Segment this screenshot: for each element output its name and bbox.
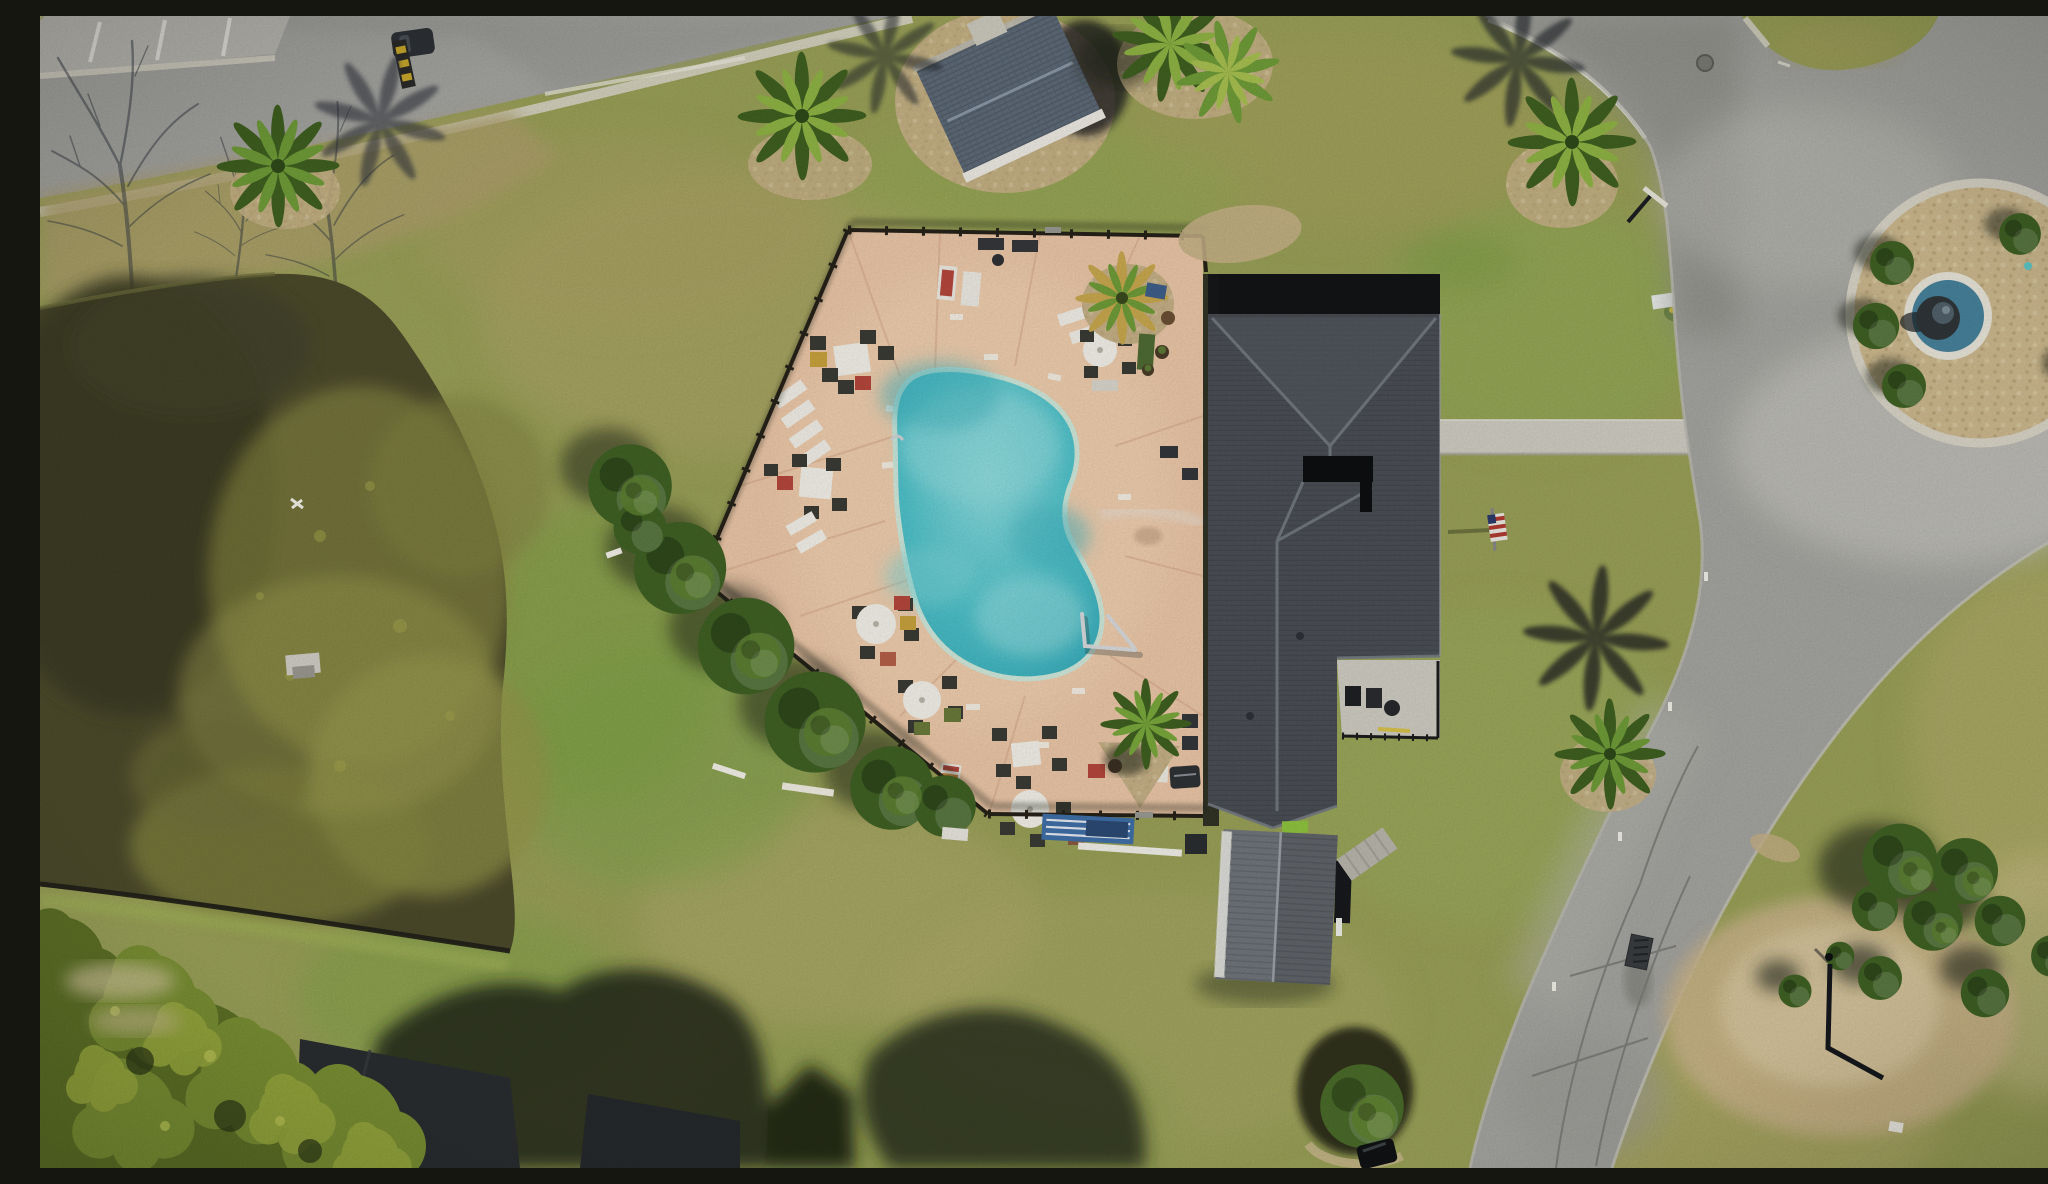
aerial-photo-canvas [40,16,2048,1168]
aerial-photo: Top-down drone photo of a community club… [40,16,2048,1168]
vignette [40,16,2048,1168]
